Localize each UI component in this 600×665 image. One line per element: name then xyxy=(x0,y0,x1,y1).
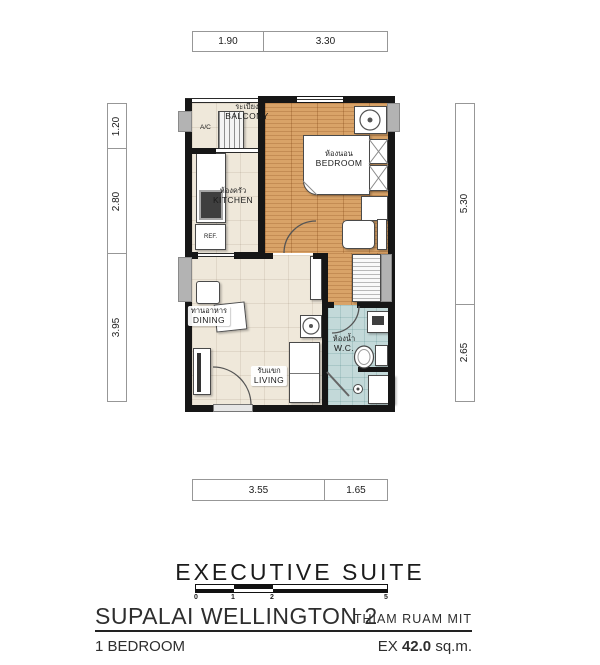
kitchen-label-en: KITCHEN xyxy=(213,195,253,205)
unit-type: 1 BEDROOM xyxy=(95,638,185,655)
sofa xyxy=(289,342,320,403)
entrance-door-leaf xyxy=(213,404,253,412)
scale-segment xyxy=(234,589,273,593)
scale-bar-bottom-row xyxy=(196,589,387,593)
scale-tick-1: 1 xyxy=(231,594,235,601)
bedroom-label-en: BEDROOM xyxy=(316,158,363,168)
kitchen-label-th: ห้องครัว xyxy=(213,186,253,195)
wall-bedroom-door-stub-left xyxy=(265,253,273,259)
desk-chair xyxy=(342,220,375,249)
project-location: THIAM RUAM MIT xyxy=(354,612,472,626)
wc-label: ห้องน้ำ W.C. xyxy=(333,334,355,353)
column xyxy=(178,257,192,302)
wc-label-en: W.C. xyxy=(333,343,355,353)
dim-left-3: 3.95 xyxy=(112,318,123,337)
wall-wc-door-stub xyxy=(328,302,334,308)
living-label-en: LIVING xyxy=(254,375,284,385)
bedroom-label: ห้องนอน BEDROOM xyxy=(316,149,363,168)
dining-label-en: DINING xyxy=(191,315,227,325)
living-label: รับแขก LIVING xyxy=(251,366,287,386)
project-name: SUPALAI WELLINGTON 2 xyxy=(95,603,378,630)
kitchen-pass-opening xyxy=(198,253,234,257)
bedroom-label-th: ห้องนอน xyxy=(316,149,363,158)
scale-tick-0: 0 xyxy=(194,594,198,601)
dim-top-2: 3.30 xyxy=(316,36,335,47)
scale-tick-2: 2 xyxy=(270,594,274,601)
wall-kitchen-dining-stub-right xyxy=(234,252,265,259)
wc-basin xyxy=(367,311,389,333)
bedroom-ac-unit xyxy=(354,106,387,134)
toilet-tank xyxy=(375,345,388,366)
dim-bottom-2: 1.65 xyxy=(346,485,365,496)
dim-right-2: 2.65 xyxy=(460,343,471,362)
wall-bedroom-door-stub-right xyxy=(313,253,322,259)
dim-top-1: 1.90 xyxy=(218,36,237,47)
dressing-mirror xyxy=(377,219,387,250)
dimension-bar-right: 5.30 2.65 xyxy=(455,103,475,402)
wardrobe xyxy=(352,254,381,302)
dimension-bar-top: 1.90 3.30 xyxy=(192,31,388,52)
wall-bedroom-wc xyxy=(357,302,395,308)
balcony-label-en: BALCONY xyxy=(225,111,268,121)
pillow xyxy=(369,139,388,164)
dim-left-2: 2.80 xyxy=(112,191,123,210)
dimension-bar-left: 1.20 2.80 3.95 xyxy=(107,103,127,402)
dimension-bar-bottom: 3.55 1.65 xyxy=(192,479,388,501)
tv-screen xyxy=(197,353,201,392)
area-prefix: EX xyxy=(378,638,398,655)
kitchen-label: ห้องครัว KITCHEN xyxy=(213,186,253,205)
balcony-sliding-door xyxy=(216,148,258,153)
dim-right-1: 5.30 xyxy=(460,194,471,213)
side-table xyxy=(300,315,322,338)
dining-label-th: ทานอาหาร xyxy=(191,306,227,315)
wall-balcony-kitchen xyxy=(192,148,216,154)
bedroom-window xyxy=(297,97,343,102)
unit-area: EX 42.0 sq.m. xyxy=(378,638,472,655)
scale-segment xyxy=(273,589,387,593)
balcony-label-th: ระเบียง xyxy=(225,102,268,111)
sofa-cushion-divider xyxy=(290,373,319,374)
dining-label: ทานอาหาร DINING xyxy=(188,306,230,326)
bedroom-door-leaf xyxy=(310,256,322,300)
wall-bottom-left xyxy=(185,405,213,412)
column xyxy=(381,254,392,302)
bedside-table xyxy=(361,196,388,221)
dining-chair xyxy=(196,281,220,304)
footer-divider xyxy=(95,630,472,632)
refrigerator-label: REF. xyxy=(204,234,217,240)
suite-title: EXECUTIVE SUITE xyxy=(0,559,600,586)
dim-left-1: 1.20 xyxy=(112,116,123,135)
scale-tick-5: 5 xyxy=(384,594,388,601)
tv-console xyxy=(193,348,211,395)
ac-label: A/C xyxy=(200,124,211,131)
wc-label-th: ห้องน้ำ xyxy=(333,334,355,343)
living-label-th: รับแขก xyxy=(254,366,284,375)
wall-living-wc xyxy=(322,253,328,405)
floor-plan-page: 1.90 3.30 1.20 2.80 3.95 5.30 2.65 3.55 … xyxy=(0,0,600,665)
column xyxy=(387,103,400,132)
wall-bottom-right xyxy=(253,405,395,412)
refrigerator: REF. xyxy=(195,224,226,250)
pillow xyxy=(369,165,388,191)
area-unit: sq.m. xyxy=(435,638,472,655)
area-value: 42.0 xyxy=(402,638,431,655)
wall-kitchen-bedroom xyxy=(258,103,265,255)
wc-partition-stub xyxy=(358,367,395,372)
scale-bar xyxy=(195,584,388,593)
balcony-label: ระเบียง BALCONY xyxy=(225,102,268,121)
wc-basin-faucet xyxy=(372,316,384,325)
scale-segment xyxy=(196,589,234,593)
dim-bottom-1: 3.55 xyxy=(249,485,268,496)
column xyxy=(178,111,192,132)
